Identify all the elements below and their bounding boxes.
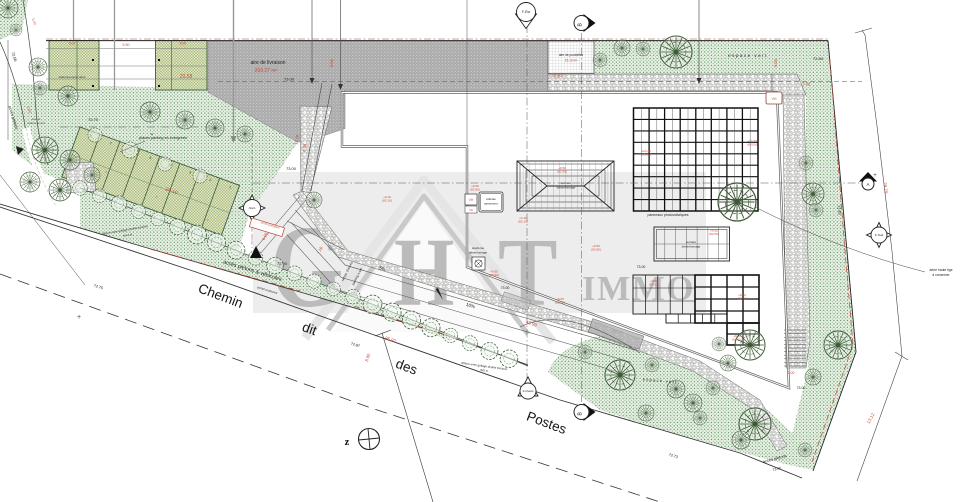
svg-text:places parking en evergreen: places parking en evergreen	[139, 136, 187, 140]
svg-text:73.00: 73.00	[286, 166, 297, 171]
svg-text:VH: VH	[469, 198, 474, 202]
svg-text:VH: VH	[469, 208, 473, 212]
svg-text:(82.50): (82.50)	[470, 188, 480, 192]
svg-text:5.00: 5.00	[180, 42, 187, 46]
svg-text:73.00: 73.00	[501, 286, 510, 290]
svg-text:F-Ouest: F-Ouest	[523, 389, 534, 393]
svg-text:arbre haute tige: arbre haute tige	[929, 268, 952, 272]
svg-text:42.84: 42.84	[551, 74, 563, 79]
svg-text:203.27 m²: 203.27 m²	[255, 68, 278, 74]
svg-text:à conserver: à conserver	[932, 273, 950, 277]
svg-text:(82.50): (82.50)	[555, 301, 565, 305]
svg-text:désenfumage: désenfumage	[682, 245, 701, 249]
svg-text:(85.50): (85.50)	[489, 273, 499, 277]
svg-text:(82.10): (82.10)	[518, 220, 528, 224]
svg-text:5.50: 5.50	[123, 43, 130, 47]
svg-text:désenfumage: désenfumage	[469, 251, 488, 255]
svg-text:skydome: skydome	[472, 246, 484, 250]
svg-text:VH: VH	[772, 97, 777, 101]
svg-text:15.19 m²: 15.19 m²	[565, 59, 578, 63]
svg-text:(82.50): (82.50)	[557, 170, 567, 174]
svg-text:(82.50): (82.50)	[709, 232, 719, 236]
svg-text:ascenseur: ascenseur	[484, 202, 498, 206]
svg-text:+: +	[873, 173, 877, 179]
svg-text:verrière: verrière	[686, 240, 697, 244]
svg-text:73.00: 73.00	[797, 386, 806, 390]
svg-text:72.84: 72.84	[813, 56, 824, 61]
svg-text:(83.00): (83.00)	[641, 153, 651, 157]
svg-text:panneaux photovoltaïques: panneaux photovoltaïques	[647, 213, 688, 217]
svg-text:désenfumage: désenfumage	[557, 186, 576, 190]
svg-text:édicule: édicule	[486, 197, 496, 201]
svg-text:2.00: 2.00	[788, 371, 795, 375]
svg-text:A: A	[866, 182, 869, 187]
svg-text:(82.10): (82.10)	[382, 199, 392, 203]
svg-text:(83.00): (83.00)	[747, 143, 757, 147]
svg-text:aire de livraison: aire de livraison	[250, 60, 285, 66]
svg-text:(82.50): (82.50)	[591, 248, 601, 252]
svg-text:F-Est: F-Est	[522, 10, 530, 14]
svg-text:(82.50): (82.50)	[649, 283, 659, 287]
svg-text:stationnement: stationnement	[27, 121, 45, 125]
svg-text:+: +	[151, 132, 154, 138]
svg-text:z: z	[345, 437, 350, 448]
svg-text:73.00: 73.00	[637, 265, 646, 269]
svg-text:8.00: 8.00	[329, 58, 334, 67]
svg-text:72.70: 72.70	[88, 117, 99, 122]
svg-text:stationnement vélos: stationnement vélos	[59, 75, 86, 79]
svg-text:5.00: 5.00	[69, 42, 76, 46]
svg-text:+: +	[77, 314, 81, 321]
svg-text:20.58: 20.58	[180, 74, 193, 80]
svg-text:aire de poubelles: aire de poubelles	[559, 53, 584, 57]
svg-text:73.00: 73.00	[284, 77, 295, 82]
svg-text:-Nord-: -Nord-	[248, 206, 256, 210]
svg-text:F-Sud: F-Sud	[875, 233, 884, 237]
svg-text:72.90: 72.90	[277, 261, 288, 266]
svg-text:(82.50): (82.50)	[737, 297, 747, 301]
svg-text:espace vert: espace vert	[728, 53, 768, 58]
svg-text:6.00: 6.00	[773, 58, 778, 67]
